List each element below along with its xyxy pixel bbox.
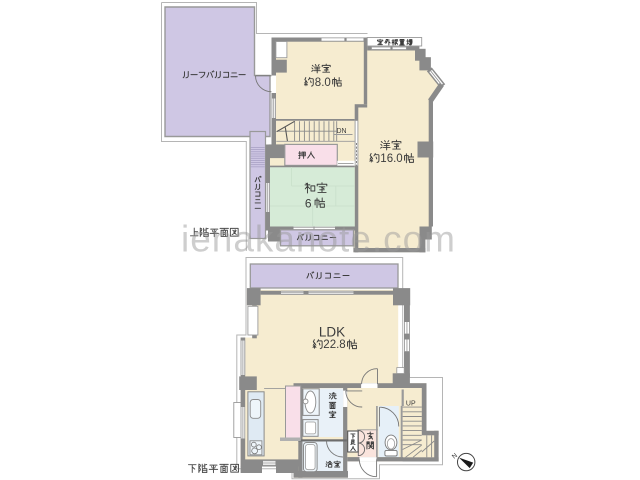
svg-text:LDK: LDK — [319, 325, 345, 340]
svg-text:22.8: 22.8 — [323, 339, 345, 351]
svg-text:8.0: 8.0 — [315, 77, 331, 89]
svg-text:6: 6 — [305, 196, 312, 210]
svg-text:ienakanote.com: ienakanote.com — [181, 219, 455, 260]
svg-text:UP: UP — [406, 401, 416, 408]
svg-text:DN: DN — [337, 128, 347, 135]
svg-text:16.0: 16.0 — [380, 153, 402, 165]
